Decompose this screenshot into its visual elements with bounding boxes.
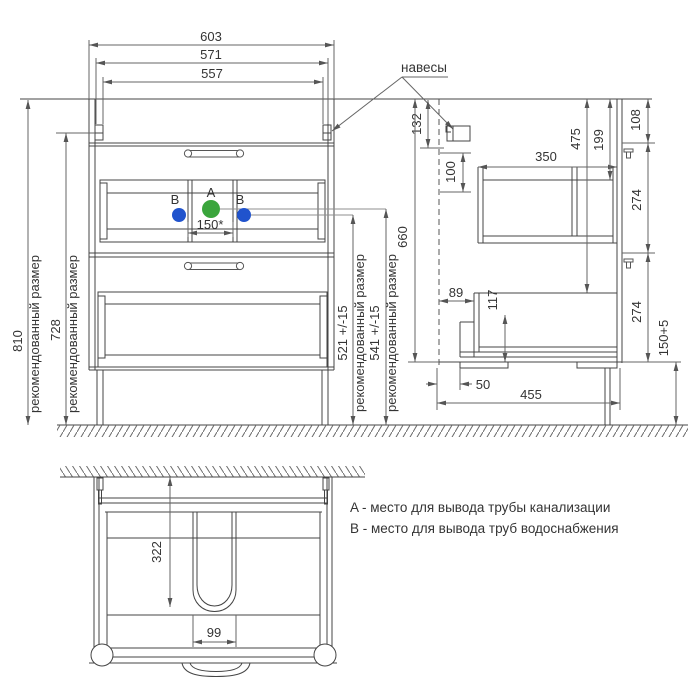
vanity-drawing-svg: A B B 150*: [0, 0, 700, 700]
dim-108: 108: [622, 99, 655, 143]
svg-text:274: 274: [629, 189, 644, 211]
svg-text:810: 810: [10, 330, 25, 352]
foot-left-icon: [91, 644, 113, 666]
svg-text:475: 475: [568, 128, 583, 150]
hangers-label: навесы: [401, 60, 447, 75]
svg-text:117: 117: [485, 290, 500, 311]
dim-274-top: 274: [622, 143, 655, 253]
dim-width-inner: 557: [103, 66, 323, 124]
hangers-leader-left: [332, 77, 402, 131]
svg-text:322: 322: [149, 541, 164, 563]
pipe-cutout-u: [193, 512, 236, 612]
dim-322: 322: [149, 477, 170, 607]
dim-pipe-b-height: 521 +/-15 рекомендованный размер: [335, 215, 367, 425]
svg-text:455: 455: [520, 387, 542, 402]
dim-274-bottom: 274: [622, 253, 681, 362]
upper-drawer-side: [478, 167, 617, 243]
pipe-b-label-left: B: [171, 192, 180, 207]
dim-660: 660: [395, 99, 439, 362]
pipe-b-marker-right: [237, 208, 251, 222]
technical-drawing: A B B 150*: [0, 0, 700, 700]
svg-text:50: 50: [476, 377, 490, 392]
slide-clip-top-icon: [624, 149, 633, 158]
wall-hanger-left-icon: [95, 125, 103, 140]
svg-text:199: 199: [591, 129, 606, 151]
legend: A - место для вывода трубы канализации B…: [350, 500, 619, 536]
svg-text:108: 108: [628, 109, 643, 131]
front-view: A B B 150*: [10, 29, 399, 425]
drawer-handle-bottom-icon: [184, 262, 243, 269]
pipe-b-marker-left: [172, 208, 186, 222]
dim-99: 99: [193, 615, 236, 647]
svg-text:89: 89: [449, 285, 463, 300]
lower-drawer-side: [460, 293, 617, 357]
dim-199: 199: [591, 99, 610, 180]
slide-clip-bottom-icon: [624, 259, 633, 268]
svg-text:150+5: 150+5: [656, 320, 671, 357]
dim-height-hanger: 728 рекомендованный размер: [48, 133, 95, 425]
top-view: 322 99: [60, 466, 365, 677]
wall-hatch: [60, 466, 365, 477]
svg-text:рекомендованный размер: рекомендованный размер: [384, 254, 399, 412]
svg-text:571: 571: [200, 47, 222, 62]
legend-line-a: A - место для вывода трубы канализации: [350, 500, 610, 515]
dim-117: 117: [485, 290, 505, 362]
pipe-b-label-right: B: [236, 192, 245, 207]
dim-50: 50: [426, 368, 490, 410]
dim-width-mid: 571: [96, 47, 328, 124]
plinth-legs: [97, 370, 328, 425]
svg-text:рекомендованный размер: рекомендованный размер: [27, 255, 42, 413]
svg-text:603: 603: [200, 29, 222, 44]
legend-line-b: B - место для вывода труб водоснабжения: [350, 521, 619, 536]
svg-text:рекомендованный размер: рекомендованный размер: [352, 254, 367, 412]
wall-bracket-left-icon: [97, 478, 103, 504]
svg-text:521 +/-15: 521 +/-15: [335, 305, 350, 360]
hanger-block-icon: [446, 126, 470, 141]
handle-top-view-icon: [182, 663, 250, 677]
dim-plinth-height: 150+5: [656, 320, 676, 425]
pipe-a-label: A: [207, 185, 216, 200]
svg-text:150*: 150*: [197, 217, 224, 232]
pipe-a-marker: [202, 200, 220, 218]
dim-100: 100: [440, 153, 471, 192]
dim-455: 455: [437, 368, 620, 410]
dim-width-outer: 603: [89, 29, 334, 99]
svg-text:132: 132: [409, 113, 424, 135]
foot-right-icon: [314, 644, 336, 666]
dim-height-total: 810 рекомендованный размер: [10, 100, 42, 425]
wall-bracket-right-icon: [323, 478, 329, 504]
svg-text:541 +/-15: 541 +/-15: [367, 305, 382, 360]
svg-text:557: 557: [201, 66, 223, 81]
svg-text:99: 99: [207, 625, 221, 640]
svg-text:рекомендованный размер: рекомендованный размер: [65, 255, 80, 413]
svg-text:100: 100: [443, 161, 458, 183]
lower-drawer-structure: [98, 292, 327, 367]
drawer-handle-top-icon: [184, 150, 243, 157]
wall-hanger-right-icon: [323, 125, 331, 140]
dim-pipe-spacing: 150*: [188, 217, 233, 237]
svg-text:350: 350: [535, 149, 557, 164]
floor-hatch: [57, 425, 688, 437]
svg-text:274: 274: [629, 301, 644, 323]
svg-text:660: 660: [395, 226, 410, 248]
dim-89: 89: [439, 285, 474, 301]
svg-text:728: 728: [48, 319, 63, 341]
